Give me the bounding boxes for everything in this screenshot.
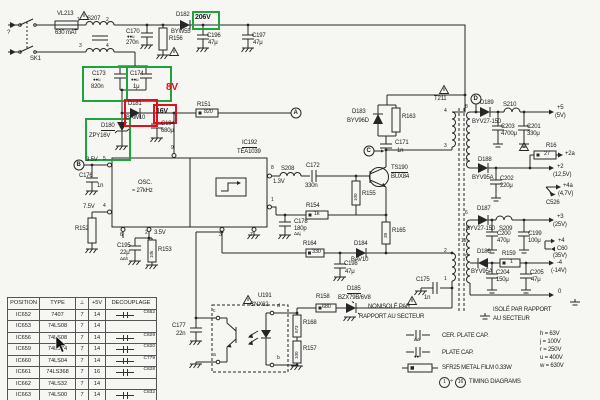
cell-5v: 14 — [89, 355, 106, 367]
c202-ref: C202 — [500, 176, 514, 182]
r153-ref: R153 — [158, 247, 172, 253]
d184-ref: D184 — [354, 241, 368, 247]
r16-ref: R16 — [546, 143, 556, 149]
s207-ref: S207 — [87, 16, 100, 22]
c198-value: 47μ — [345, 269, 355, 275]
out-plus5-voltage: (5V) — [555, 113, 566, 119]
c172-value: 330n — [305, 183, 318, 189]
c170-mark: ●●u — [127, 35, 134, 40]
node-a-label: A — [294, 110, 298, 116]
d189-ref: D189 — [480, 100, 494, 106]
ic-decoupling-table: POSITION TYPE ⊥ +5V DECOUPLAGE IC6527407… — [7, 297, 157, 400]
schematic-page: ? SK1 VL213 630 mAT S207 1 2 3 4 C170 ●●… — [0, 0, 600, 400]
cell-type: 74LS32 — [40, 378, 76, 390]
cell-position: IC656 — [8, 332, 40, 344]
xfmr-pin9: 9 — [465, 255, 468, 260]
d181-type: BAW10 — [126, 115, 145, 121]
s207-pin2: 2 — [106, 18, 109, 23]
resistor-legend-label: SFR25 METAL FILM 0.33W — [442, 365, 512, 371]
r157-ref: R157 — [303, 346, 317, 352]
c200-ref: C200 — [497, 231, 511, 237]
xfmr-pin8: 8 — [465, 105, 468, 110]
cell-position: IC659 — [8, 344, 40, 356]
xfmr-pin1: 1 — [444, 277, 447, 282]
node-b-label: B — [77, 162, 81, 168]
cell-decap: C829 — [106, 332, 157, 344]
r163-ref: R163 — [402, 114, 416, 120]
cell-5v: 16 — [89, 367, 106, 379]
c178-note: ΔΔj — [294, 232, 300, 237]
out-plus3-voltage: (25V) — [553, 222, 567, 228]
r155-value: 100 — [354, 194, 359, 201]
c173-mark: ●●u — [93, 78, 100, 83]
d187-type: BYV27-150 — [466, 226, 495, 232]
cell-gnd: 7 — [76, 390, 89, 400]
r157-value: 100 — [295, 352, 300, 359]
c178-ref: C178 — [294, 219, 308, 225]
s210-ref: S210 — [503, 102, 516, 108]
r158-value: 680 — [322, 305, 331, 311]
xfmr-pin3: 3 — [444, 144, 447, 149]
table-row: IC65374LS08714 — [8, 321, 157, 333]
table-row: IC66374LS00714C832 — [8, 390, 157, 400]
table-row: IC66074LS04714C779 — [8, 355, 157, 367]
opto-pin-c: c — [213, 309, 215, 314]
cell-5v: 14 — [89, 332, 106, 344]
c194-ref: C194 — [161, 121, 175, 127]
c197-value: 47μ — [253, 40, 263, 46]
out-plus2-voltage: (12,5V) — [553, 172, 571, 178]
c177-value: 22n — [176, 331, 185, 337]
out-plus4a-cap: C526 — [546, 200, 560, 206]
t211-ref: T211 — [434, 96, 446, 102]
legend-symbols — [402, 330, 438, 372]
table-row: IC6527407714C652 — [8, 309, 157, 321]
cell-5v: 14 — [89, 344, 106, 356]
ic-pin8-voltage: 1.3V — [273, 179, 285, 185]
d186-ref: D186 — [477, 249, 491, 255]
decoupling-cap-icon — [116, 334, 134, 342]
cell-decap: C779 — [106, 355, 157, 367]
d180-type: ZPY16V — [89, 133, 110, 139]
col-type: TYPE — [40, 298, 76, 310]
r154-value: 1k — [314, 212, 319, 218]
c177-ref: C177 — [172, 323, 186, 329]
ic-pin8: 8 — [271, 166, 274, 171]
decap-label: C828 — [144, 367, 155, 372]
cell-position: IC652 — [8, 309, 40, 321]
out-minus4-voltage: (-14V) — [551, 268, 566, 274]
c197-ref: C197 — [252, 33, 266, 39]
c171-ref: C171 — [395, 140, 409, 146]
code-w: w = 630V — [540, 363, 564, 369]
table-row: IC66274LS32714 — [8, 378, 157, 390]
c195-ref: C195 — [117, 243, 131, 249]
r164-value: 330 — [312, 250, 321, 256]
decap-label: C652 — [144, 310, 155, 315]
cell-decap: C828 — [106, 367, 157, 379]
c205-ref: C205 — [530, 270, 544, 276]
ic-pin2: 2 — [145, 231, 148, 236]
d189-type: BYV27-150 — [472, 119, 501, 125]
c204-value: 150μ — [496, 277, 509, 283]
code-u: u = 400V — [540, 355, 563, 361]
cell-type: 74LS04 — [40, 355, 76, 367]
s207-pin1: 1 — [77, 18, 80, 23]
decoupling-cap-icon — [116, 311, 134, 319]
code-r: r = 250V — [540, 347, 561, 353]
out-plus4-voltage: (35V) — [553, 253, 567, 259]
ic-pin2-voltage: 3.5V — [154, 230, 166, 236]
timing-to-badge: 16 — [455, 377, 466, 388]
c201-value: 330μ — [527, 131, 540, 137]
d187-ref: D187 — [477, 206, 491, 212]
ic-pin7: 7 — [250, 233, 253, 238]
decoupling-cap-icon — [116, 345, 134, 353]
decap-label: C779 — [144, 356, 155, 361]
code-j: j = 100V — [540, 339, 561, 345]
plate-cap-label: PLATE CAP. — [442, 350, 473, 356]
cell-decap: C652 — [106, 309, 157, 321]
col-decouplage: DECOUPLAGE — [106, 298, 157, 310]
ic-pin3: 3 — [219, 233, 222, 238]
cell-gnd: 7 — [76, 378, 89, 390]
table-row: IC65974LS74714C820 — [8, 344, 157, 356]
d181-ref: D181 — [128, 101, 142, 107]
d180-ref: D180 — [101, 123, 115, 131]
c196-value: 47μ — [208, 40, 218, 46]
c202-value: 220μ — [500, 183, 513, 189]
voltage-16v: 16V — [156, 108, 168, 115]
d182-type: BYW55 — [171, 29, 190, 35]
c196-ref: C196 — [207, 33, 221, 39]
cell-5v: 14 — [89, 309, 106, 321]
vl213-ref: VL213 — [57, 11, 73, 17]
cell-position: IC663 — [8, 390, 40, 400]
sk1-label: SK1 — [30, 56, 41, 62]
cell-type: 74LS08 — [40, 321, 76, 333]
ic-pin5-voltage: 3.5V — [86, 157, 98, 163]
c173-value: 820n — [91, 84, 104, 90]
cell-decap — [106, 378, 157, 390]
r164-ref: R164 — [303, 241, 317, 247]
ic192-ref: IC192 — [242, 140, 257, 148]
opto-pin-d: d — [277, 304, 280, 309]
xfmr-pin7: 7 — [465, 159, 468, 164]
xfmr-pin4: 4 — [444, 109, 447, 114]
d186-type: BYV95A — [471, 269, 492, 275]
out-zero: 0 — [558, 289, 561, 295]
col-5v: +5V — [89, 298, 106, 310]
d188-ref: D188 — [478, 157, 492, 163]
decoupling-cap-icon — [116, 357, 134, 365]
opto-pin-b: b — [277, 356, 280, 361]
ic-pin4-voltage: 7.5V — [83, 204, 95, 210]
cell-position: IC662 — [8, 378, 40, 390]
r165-value: 39 — [384, 233, 389, 238]
c199-ref: C199 — [528, 231, 542, 237]
col-gnd: ⊥ — [76, 298, 89, 310]
col-position: POSITION — [8, 298, 40, 310]
plate-cap-mark: ●● — [414, 355, 419, 360]
cell-gnd: 7 — [76, 321, 89, 333]
ic-pin5: 5 — [103, 157, 106, 162]
r156-ref: R156 — [169, 36, 183, 42]
c176-ref: C176 — [79, 173, 93, 179]
cell-decap — [106, 321, 157, 333]
table-row: IC65674LS08714C829 — [8, 332, 157, 344]
mains-plug-mark: ? — [7, 30, 10, 36]
timing-label: TIMING DIAGRAMS — [469, 379, 521, 385]
cell-position: IC661 — [8, 367, 40, 379]
cell-gnd: 7 — [76, 332, 89, 344]
mouse-cursor — [56, 336, 70, 356]
cell-position: IC653 — [8, 321, 40, 333]
cell-gnd: 7 — [76, 355, 89, 367]
cell-5v: 14 — [89, 378, 106, 390]
r16-value: 27 — [544, 152, 550, 158]
c195-note: ΔΔh — [120, 257, 128, 262]
cell-decap: C832 — [106, 390, 157, 400]
table-header-row: POSITION TYPE ⊥ +5V DECOUPLAGE — [8, 298, 157, 310]
u191-ref: U191 — [258, 293, 272, 299]
out-plus5: +5 — [557, 105, 563, 111]
cell-type: 74LS00 — [40, 390, 76, 400]
out-plus4: +4 — [558, 238, 564, 244]
vl213-value: 630 mAT — [55, 30, 78, 36]
ts190-type: BUX84 — [391, 174, 409, 180]
c198-ref: C198 — [344, 261, 358, 267]
decoupling-cap-icon — [116, 391, 134, 399]
c203-ref: C203 — [501, 124, 515, 130]
c172-ref: C172 — [306, 163, 320, 169]
out-plus3: +3 — [557, 214, 563, 220]
out-plus2: +2 — [557, 164, 563, 170]
noniso-note-line2: RAPPORT AU SECTEUR — [359, 314, 424, 320]
cell-gnd: 7 — [76, 344, 89, 356]
s207-pin4: 4 — [106, 44, 109, 49]
timing-from-badge: 1 — [439, 377, 450, 388]
u191-type: CNX62 — [250, 302, 268, 308]
ic-pin1: 1 — [271, 198, 274, 203]
xfmr-pin2: 2 — [444, 249, 447, 254]
d185-type: BZX79B/6V8 — [338, 295, 371, 301]
r165-ref: R165 — [392, 228, 406, 234]
c175-value: 1n — [424, 295, 430, 301]
r151-value: 820 — [204, 110, 213, 116]
node-d-label: D — [474, 96, 478, 102]
out-plus2a: +2a — [565, 151, 575, 157]
cer-cap-mark: ΔΔ — [414, 338, 420, 343]
cell-5v: 14 — [89, 321, 106, 333]
r151-ref: R151 — [197, 102, 211, 108]
iso-note-line1: ISOLÉ PAR RAPPORT — [493, 307, 551, 313]
mains-input-wiring — [8, 12, 465, 113]
out-plus4a-voltage: (4,7V) — [558, 191, 573, 197]
d182-ref: D182 — [176, 12, 190, 18]
out-plus4-cap: C60 — [557, 246, 567, 252]
c205-value: 47μ — [531, 277, 541, 283]
timing-divider: ÷ — [450, 379, 453, 385]
c174-mark: ●●u — [131, 78, 138, 83]
code-h: h = 63V — [540, 331, 559, 337]
r153-value: 10k — [150, 251, 155, 258]
c199-value: 100μ — [528, 238, 541, 244]
voltage-206v: 206V — [195, 14, 211, 21]
table-row: IC66174LS368716C828 — [8, 367, 157, 379]
d185-ref: D185 — [347, 286, 361, 294]
cell-position: IC660 — [8, 355, 40, 367]
cell-5v: 14 — [89, 390, 106, 400]
voltage-8v: 8V — [166, 83, 178, 94]
opto-pin-a: a — [213, 353, 216, 358]
node-c-label: C — [367, 148, 371, 154]
ts190-ref: TS190 — [391, 165, 408, 173]
s208-ref: S208 — [281, 166, 294, 172]
r154-ref: R154 — [306, 203, 320, 209]
decap-label: C820 — [144, 344, 155, 349]
c204-ref: C204 — [496, 270, 510, 276]
s207-pin3: 3 — [79, 44, 82, 49]
r168-value: 673 — [295, 326, 300, 333]
c201-ref: C201 — [527, 124, 541, 130]
out-minus4: -4 — [557, 260, 562, 266]
d183-type: BYV96D — [347, 118, 369, 124]
out-plus4a: +4a — [563, 183, 573, 189]
xfmr-pin6: 6 — [465, 211, 468, 216]
osc-label: OSC. — [138, 180, 152, 186]
decap-label: C832 — [144, 390, 155, 395]
d188-type: BYV95A — [472, 175, 493, 181]
cell-gnd: 7 — [76, 367, 89, 379]
cell-gnd: 7 — [76, 309, 89, 321]
c175-ref: C175 — [416, 277, 430, 283]
cell-decap: C820 — [106, 344, 157, 356]
r155-ref: R155 — [362, 191, 376, 197]
ic-pin9: 9 — [171, 146, 174, 151]
r159-ref: R159 — [502, 251, 516, 257]
noniso-note-line1: NONISOLÉ PAR — [368, 304, 410, 310]
decoupling-cap-icon — [116, 368, 134, 376]
iso-note-line2: AU SECTEUR — [493, 316, 530, 322]
d183-ref: D183 — [352, 109, 366, 115]
cer-cap-label: CER. PLATE CAP. — [442, 333, 488, 339]
r168-ref: R168 — [303, 320, 317, 326]
r159-value: 1 — [510, 260, 513, 266]
c194-value: 680μ — [161, 128, 174, 134]
r158-ref: R158 — [316, 294, 330, 300]
c200-value: 470μ — [497, 238, 510, 244]
ic192-wiring — [74, 154, 280, 270]
c203-value: 4700μ — [501, 131, 517, 137]
c170-value: 270n — [126, 40, 139, 46]
r152-ref: R152 — [75, 226, 89, 232]
xfmr-pin15: 15 — [461, 239, 466, 244]
ic192-type: TEA1039 — [237, 149, 261, 155]
cell-type: 74LS368 — [40, 367, 76, 379]
c174-value: 1μ — [133, 84, 139, 90]
cell-type: 7407 — [40, 309, 76, 321]
c171-value: 1n — [397, 148, 403, 154]
ic-pin4: 4 — [103, 204, 106, 209]
ic-pin6: 6 — [120, 233, 123, 238]
c176-value: 1n — [97, 183, 103, 189]
decap-label: C829 — [144, 333, 155, 338]
osc-freq: ≈ 27kHz — [132, 188, 153, 194]
